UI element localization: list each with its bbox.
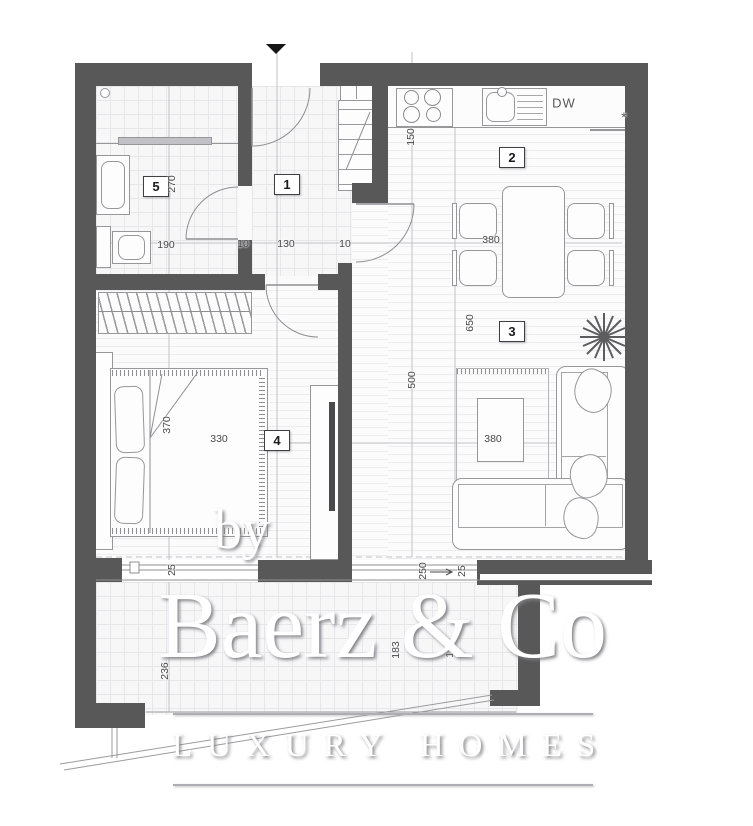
doors-and-details <box>0 0 753 826</box>
watermark-rule-top <box>173 713 593 715</box>
watermark-tagline: LUXURY HOMES <box>172 728 596 765</box>
watermark-rule-bottom <box>173 784 593 786</box>
dim-hall-width: 130 <box>277 238 295 250</box>
dim-living-depth: 500 <box>406 371 418 389</box>
bathroom-door-arc <box>186 187 238 239</box>
entrance-arrow-icon <box>266 44 286 54</box>
room-label-3: 3 <box>499 321 525 342</box>
dim-dining-width: 380 <box>482 234 500 246</box>
dim-living-length: 650 <box>464 314 476 332</box>
room-label-2: 2 <box>499 147 525 168</box>
dishwasher-label: DW <box>552 96 576 111</box>
living-door-arc <box>356 204 414 262</box>
dim-counter-depth: 150 <box>405 128 417 146</box>
plant-icon <box>580 313 628 361</box>
entry-door-arc <box>252 88 310 146</box>
counter-note: * <box>621 109 626 125</box>
dim-bedroom-depth: 370 <box>161 416 173 434</box>
blanket-fold <box>150 372 198 438</box>
dim-bedroom-width: 330 <box>210 433 228 445</box>
wardrobe-diagonal <box>346 112 370 170</box>
watermark-by: by <box>214 498 270 562</box>
dim-bathroom-width: 190 <box>157 239 175 251</box>
room-label-4: 4 <box>264 430 290 451</box>
bedroom-door-arc <box>266 285 318 337</box>
dim-living-width: 380 <box>484 433 502 445</box>
watermark-brand: Baerz & Co <box>158 572 603 680</box>
dim-wall-b: 10 <box>339 238 351 250</box>
floorplan-canvas: DW * <box>0 0 753 826</box>
dim-bathroom-depth: 270 <box>166 175 178 193</box>
room-label-1: 1 <box>274 174 300 195</box>
dim-wall-a: 10 <box>237 238 249 250</box>
